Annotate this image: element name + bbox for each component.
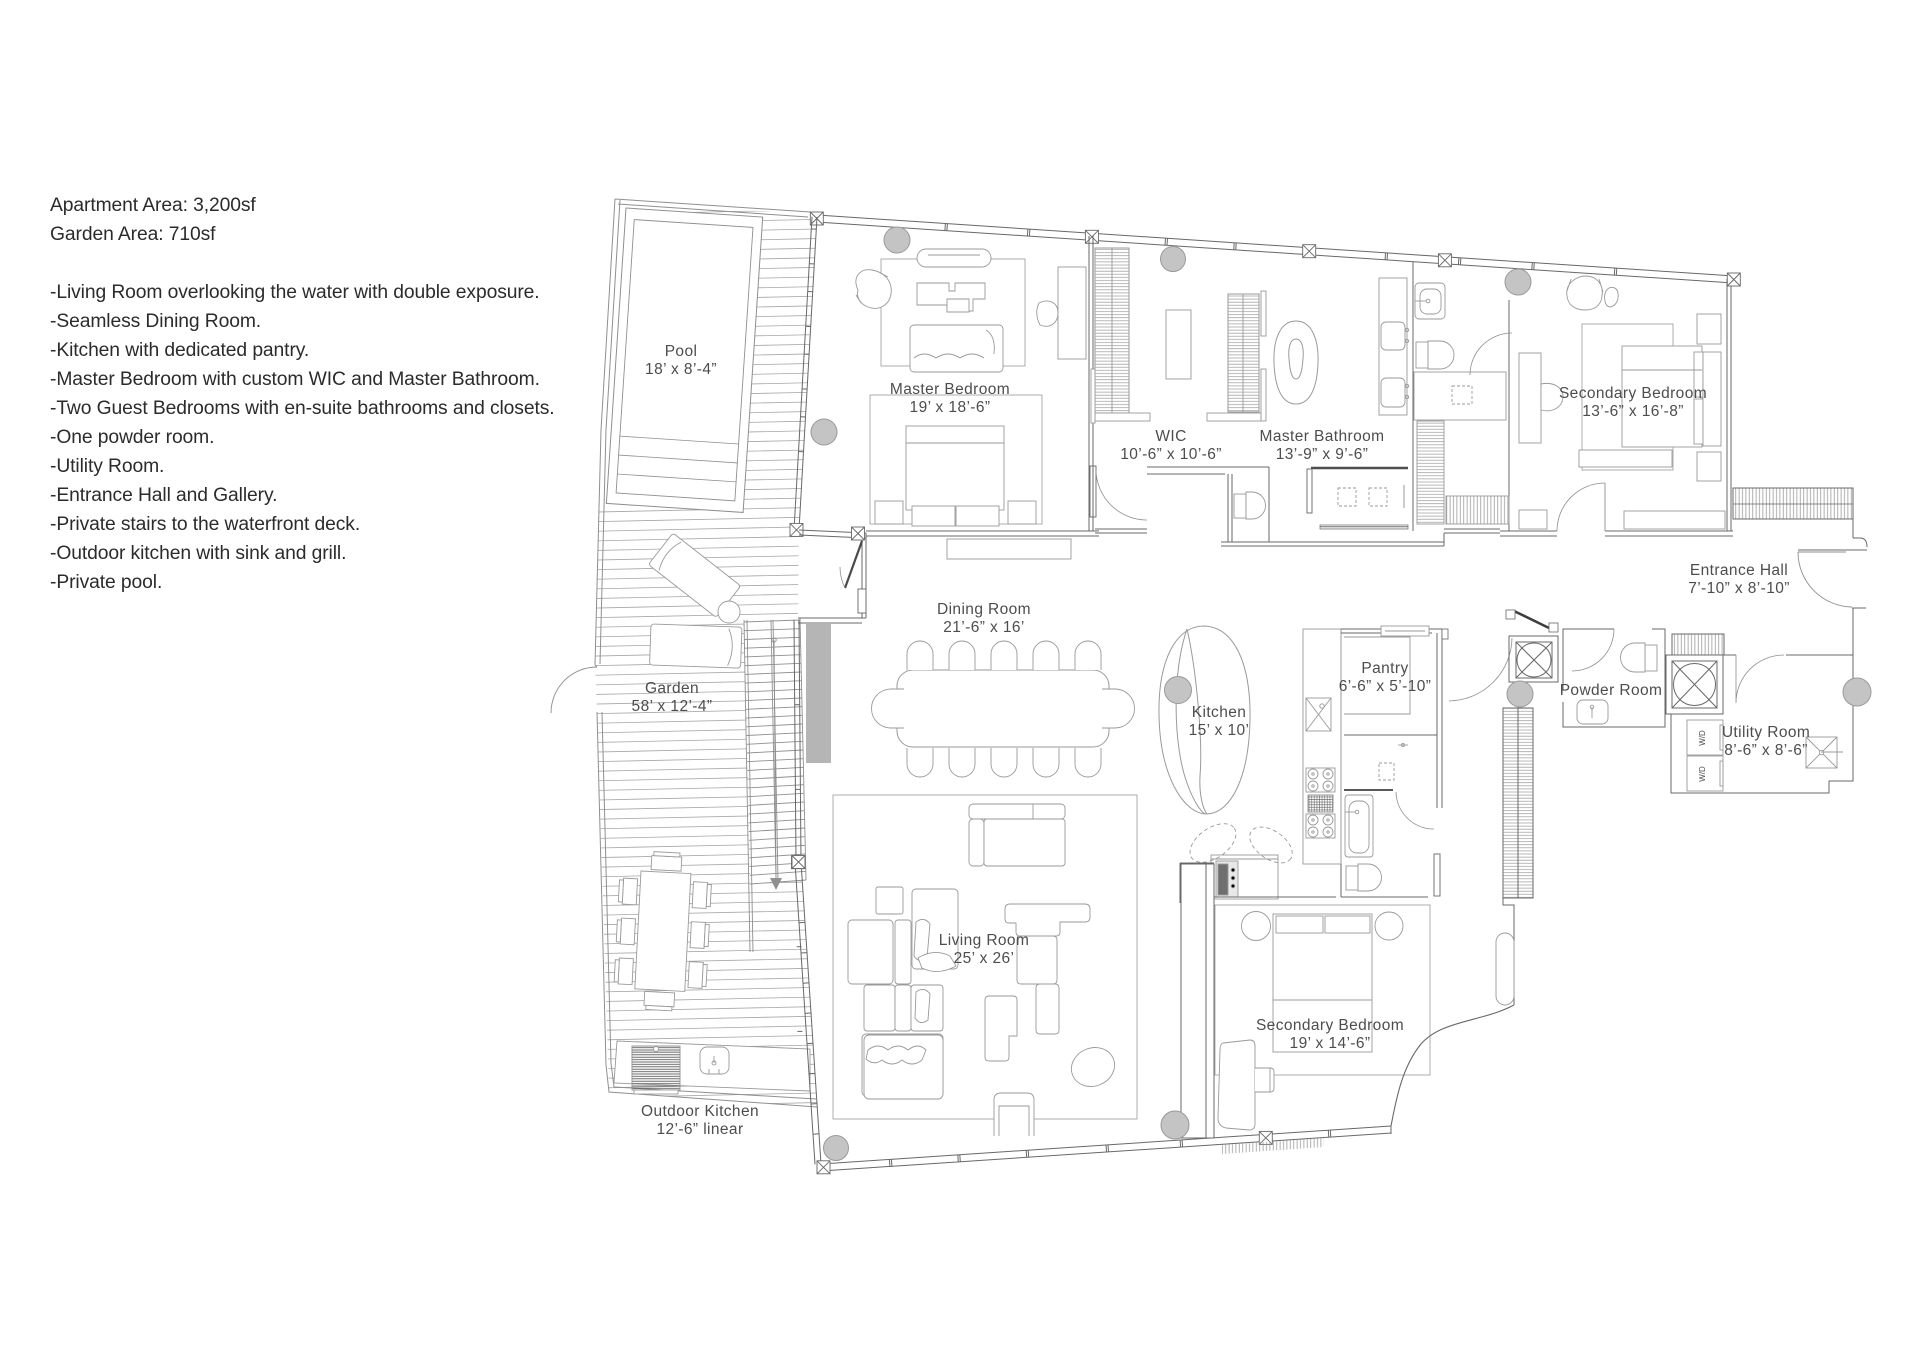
svg-text:25’ x 26’: 25’ x 26’ <box>954 950 1015 967</box>
svg-text:-Master Bedroom with custom WI: -Master Bedroom with custom WIC and Mast… <box>50 369 540 390</box>
svg-text:Garden Area: 710sf: Garden Area: 710sf <box>50 224 216 245</box>
svg-text:Garden: Garden <box>645 680 699 697</box>
svg-text:13’-9” x 9’-6”: 13’-9” x 9’-6” <box>1276 446 1369 463</box>
svg-text:Master Bathroom: Master Bathroom <box>1260 428 1385 445</box>
svg-text:7’-10” x 8’-10”: 7’-10” x 8’-10” <box>1688 580 1790 597</box>
svg-text:-One powder room.: -One powder room. <box>50 427 214 448</box>
svg-text:19’ x 18’-6”: 19’ x 18’-6” <box>910 399 991 416</box>
svg-text:6’-6” x 5’-10”: 6’-6” x 5’-10” <box>1339 678 1432 695</box>
svg-text:Secondary Bedroom: Secondary Bedroom <box>1256 1017 1404 1034</box>
svg-text:18’ x 8’-4”: 18’ x 8’-4” <box>645 361 717 378</box>
svg-text:Living Room: Living Room <box>939 932 1030 949</box>
svg-text:21’-6” x 16’: 21’-6” x 16’ <box>943 619 1024 636</box>
svg-text:Utility Room: Utility Room <box>1722 724 1810 741</box>
svg-text:Pantry: Pantry <box>1361 660 1408 677</box>
svg-text:-Seamless Dining Room.: -Seamless Dining Room. <box>50 311 261 332</box>
svg-text:Secondary Bedroom: Secondary Bedroom <box>1559 385 1707 402</box>
svg-text:-Entrance Hall and Gallery.: -Entrance Hall and Gallery. <box>50 485 277 506</box>
svg-text:-Living Room overlooking the w: -Living Room overlooking the water with … <box>50 282 540 303</box>
svg-text:13’-6” x 16’-8”: 13’-6” x 16’-8” <box>1582 403 1684 420</box>
svg-text:-Private stairs to the waterfr: -Private stairs to the waterfront deck. <box>50 514 360 535</box>
svg-text:12’-6” linear: 12’-6” linear <box>656 1121 743 1138</box>
svg-text:8’-6” x 8’-6”: 8’-6” x 8’-6” <box>1724 742 1808 759</box>
svg-text:19’ x 14’-6”: 19’ x 14’-6” <box>1290 1035 1371 1052</box>
svg-text:Kitchen: Kitchen <box>1192 704 1247 721</box>
svg-text:-Utility Room.: -Utility Room. <box>50 456 164 477</box>
svg-text:-Kitchen with dedicated pantry: -Kitchen with dedicated pantry. <box>50 340 309 361</box>
svg-text:Apartment Area: 3,200sf: Apartment Area: 3,200sf <box>50 195 256 216</box>
svg-text:-Private pool.: -Private pool. <box>50 572 162 593</box>
svg-text:-Two Guest Bedrooms with en-su: -Two Guest Bedrooms with en-suite bathro… <box>50 398 555 419</box>
svg-text:15’ x 10’: 15’ x 10’ <box>1189 722 1250 739</box>
svg-text:Outdoor Kitchen: Outdoor Kitchen <box>641 1103 759 1120</box>
svg-text:WIC: WIC <box>1155 428 1186 445</box>
svg-text:58’ x 12’-4”: 58’ x 12’-4” <box>632 698 713 715</box>
svg-text:W/D: W/D <box>1698 730 1707 746</box>
svg-text:W/D: W/D <box>1698 766 1707 782</box>
svg-text:Pool: Pool <box>665 343 698 360</box>
svg-text:Powder Room: Powder Room <box>1560 682 1663 699</box>
svg-text:10’-6” x 10’-6”: 10’-6” x 10’-6” <box>1120 446 1222 463</box>
svg-text:Entrance Hall: Entrance Hall <box>1690 562 1788 579</box>
svg-text:Master Bedroom: Master Bedroom <box>890 381 1010 398</box>
svg-text:Dining Room: Dining Room <box>937 601 1031 618</box>
svg-text:-Outdoor kitchen with sink and: -Outdoor kitchen with sink and grill. <box>50 543 346 564</box>
